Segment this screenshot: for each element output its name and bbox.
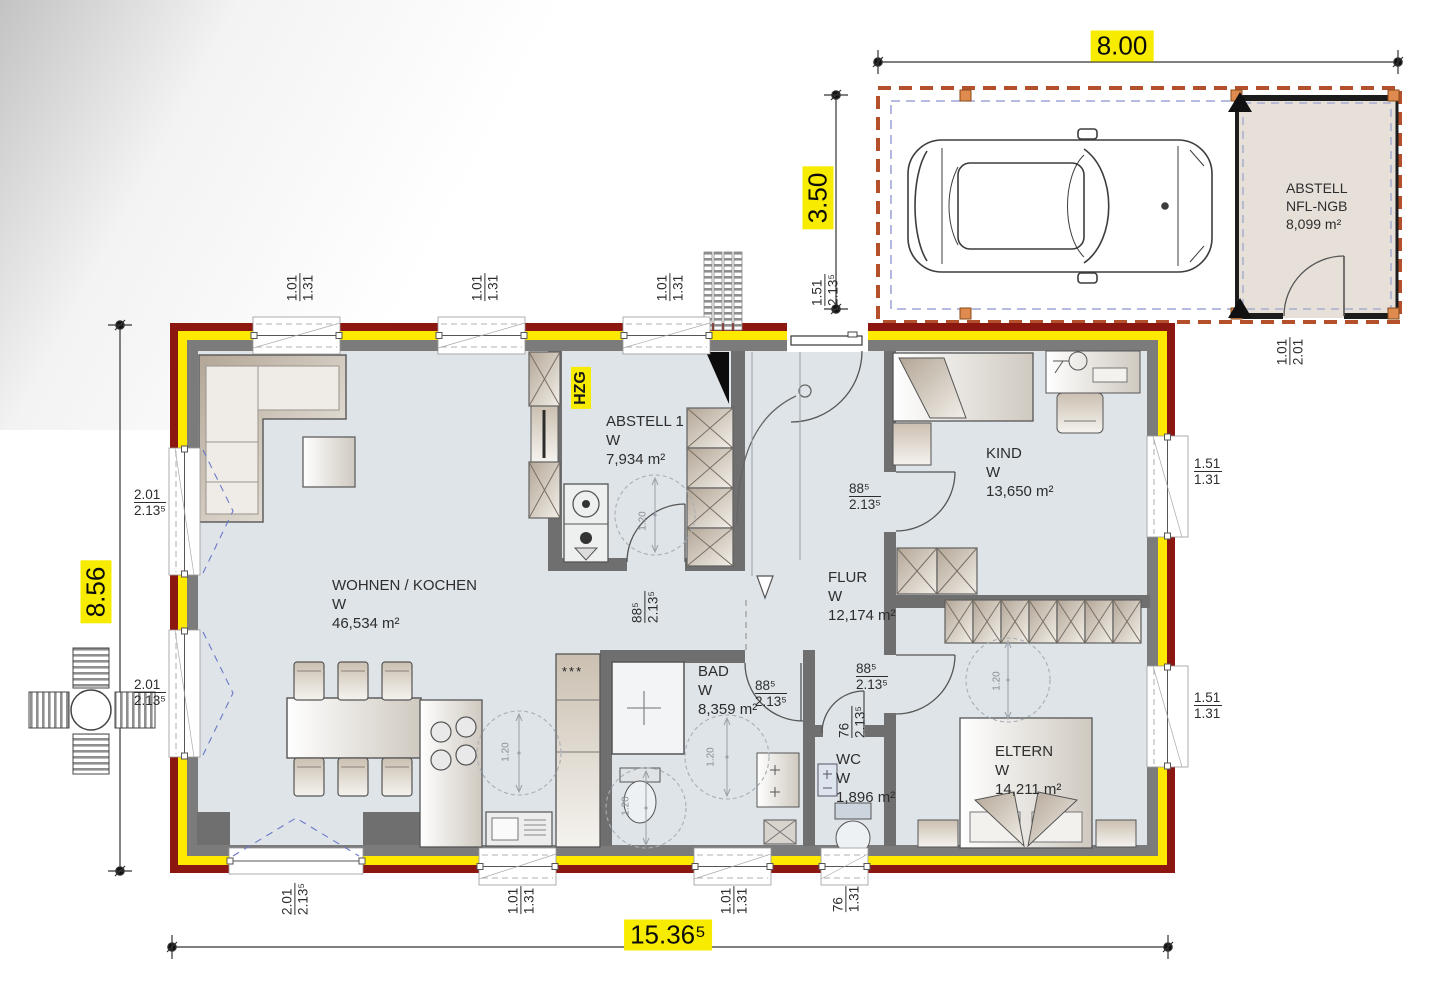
- vanity: [757, 753, 799, 807]
- window-dim-top-1: 1.011.31: [284, 273, 315, 301]
- door-dim-kind: 88⁵2.13⁵: [849, 481, 881, 512]
- toilet-tank: [620, 768, 660, 782]
- room-label-bad: BADW8,359 m²: [698, 662, 757, 720]
- freezer-stars: ***: [562, 664, 583, 679]
- room-label-abstell1: ABSTELL 1W7,934 m²: [606, 412, 684, 470]
- car-top-view: [908, 129, 1212, 283]
- window-dim-bottom-3: 1.011.31: [718, 886, 749, 914]
- terrace-door-jamb-left: [197, 812, 230, 845]
- wc-basin: [818, 764, 837, 796]
- dim-house-width: 15.36⁵: [624, 920, 712, 951]
- circle-dim-abstell1: 1.20: [638, 511, 649, 530]
- patio-chair-top: [73, 648, 109, 688]
- patio-chair-left: [29, 692, 69, 728]
- circle-dim-kitchen: 1.20: [501, 742, 512, 761]
- room-label-wohnen: WOHNEN / KOCHENW46,534 m²: [332, 576, 477, 634]
- patio-table: [71, 690, 111, 730]
- door-dim-bad: 88⁵2.13⁵: [755, 678, 787, 709]
- fridge-cabinet: [556, 654, 600, 847]
- door-dim-eltern: 88⁵2.13⁵: [856, 661, 888, 692]
- room-label-carport-abstell: ABSTELLNFL-NGB8,099 m²: [1286, 180, 1347, 234]
- window-dim-top-3: 1.011.31: [654, 273, 685, 301]
- circle-dim-bad: 1.20: [706, 747, 717, 766]
- dining-table-set: [287, 698, 421, 758]
- room-label-wc: WCW1,896 m²: [836, 750, 895, 808]
- heating-unit: [564, 484, 608, 562]
- tv-sideboard: [531, 406, 558, 462]
- terrace-door-jamb-right: [363, 812, 420, 845]
- heating-tag: HZG: [571, 367, 591, 409]
- room-label-flur: FLURW12,174 m²: [828, 568, 896, 626]
- window-dim-right-1: 1.511.31: [1194, 456, 1222, 487]
- window-dim-top-2: 1.011.31: [469, 273, 500, 301]
- storage-door-dim: 1.012.01: [1274, 337, 1305, 365]
- entry-dim-label: 1.512.13⁵: [809, 274, 840, 306]
- patio-set: [29, 648, 155, 774]
- window-dim-bottom-4: 761.31: [830, 886, 861, 912]
- door-dim-wc: 762.13⁵: [836, 706, 867, 738]
- floorplan-drawing: [0, 0, 1441, 983]
- window-dim-left-1: 2.012.13⁵: [134, 487, 166, 518]
- room-label-kind: KINDW13,650 m²: [986, 444, 1054, 502]
- oven: [486, 812, 552, 846]
- circle-dim-bad2: 1.20: [621, 796, 632, 815]
- circle-dim-eltern: 1.20: [992, 671, 1003, 690]
- dim-carport-depth: 3.50: [803, 167, 834, 230]
- door-dim-abstell1: 88⁵2.13⁵: [629, 591, 660, 623]
- window-dim-right-2: 1.511.31: [1194, 690, 1222, 721]
- nightstand-right: [1096, 820, 1136, 847]
- patio-chair-bottom: [73, 734, 109, 774]
- window-dim-bottom-1: 2.012.13⁵: [279, 883, 310, 915]
- desk-chair: [1057, 393, 1103, 433]
- kind-nightstand: [893, 423, 931, 465]
- window-dim-bottom-2: 1.011.31: [505, 886, 536, 914]
- floorplan-canvas: 8.00 3.50 8.56 15.36⁵ WOHNEN / KOCHENW46…: [0, 0, 1441, 983]
- nightstand-left: [918, 820, 958, 847]
- dim-house-depth: 8.56: [81, 561, 112, 624]
- side-table: [303, 437, 355, 487]
- dim-carport-width: 8.00: [1091, 31, 1154, 62]
- room-label-eltern: ELTERNW14,211 m²: [995, 742, 1061, 800]
- window-dim-left-2: 2.012.13⁵: [134, 677, 166, 708]
